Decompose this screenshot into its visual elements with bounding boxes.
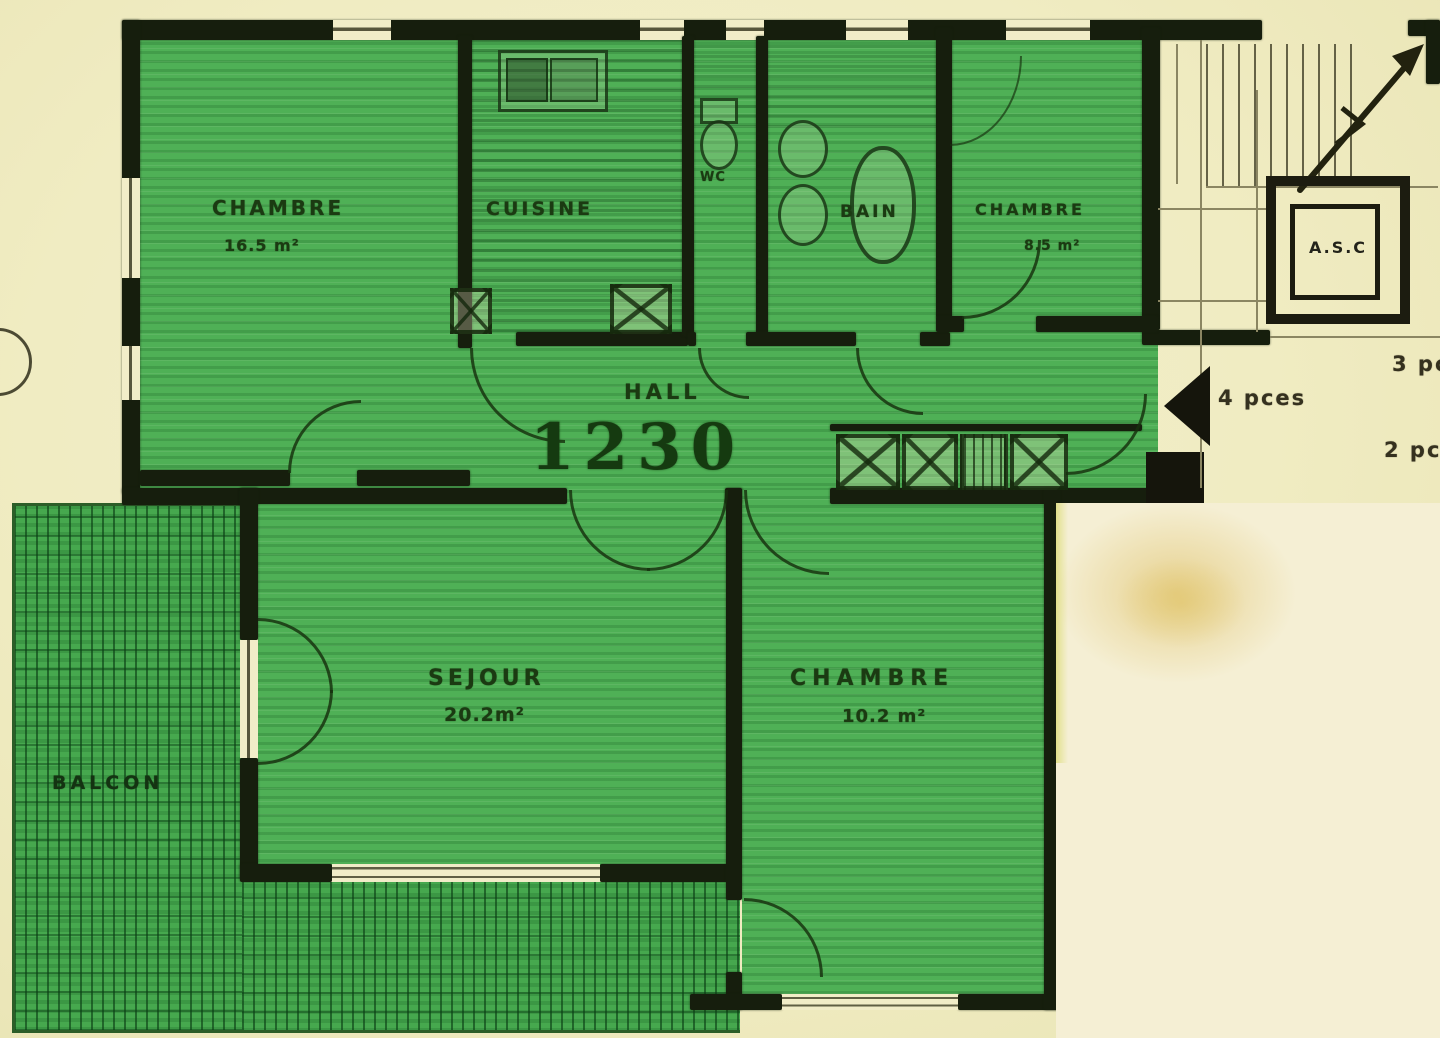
wall-wc-left: [682, 36, 694, 336]
hall-dimension: 1230: [530, 410, 744, 485]
closet-shelves: [960, 434, 1008, 490]
patch-edge: [1056, 503, 1068, 763]
room-area-chambre-b: 10.2 m²: [842, 706, 926, 727]
kitchen-stove: [550, 58, 598, 102]
room-area-sejour: 20.2m²: [444, 704, 525, 726]
annotation-4pces: 4 pces: [1218, 386, 1306, 410]
wall-chambretl-bottom-b: [357, 470, 470, 486]
balcony-door-sill: [240, 640, 258, 758]
closet-xbox: [1010, 434, 1068, 490]
room-label-wc: WC: [700, 170, 726, 185]
wall-wc-bain: [756, 36, 768, 336]
wall-chambretl-bottom-a: [140, 470, 290, 486]
elevator-label: A.S.C: [1276, 238, 1400, 257]
elevator-shaft: A.S.C: [1266, 176, 1410, 324]
wall-corner-bottom-left: [122, 488, 258, 505]
lift-link-line: [1158, 300, 1266, 302]
kitchen-sink: [506, 58, 548, 102]
wall-wcbain-south-a: [688, 332, 696, 346]
entry-direction-arrow: [1164, 366, 1210, 446]
paper-stain: [1116, 558, 1246, 648]
corridor-line: [1256, 90, 1258, 332]
sejour-window: [332, 864, 600, 882]
wall-hall-south-a: [240, 488, 567, 504]
window: [122, 178, 140, 278]
wall-sejour-bottom-a: [240, 864, 332, 882]
room-label-chambre-b: CHAMBRE: [790, 666, 954, 691]
annotation-3pces: 3 pces: [1392, 352, 1440, 376]
wall-chambretr-south-b: [1036, 316, 1158, 332]
room-label-chambre-tr: CHAMBRE: [975, 200, 1085, 219]
wall-right-top: [1142, 28, 1160, 330]
window: [122, 346, 140, 400]
window: [640, 20, 684, 40]
balcony-left: [14, 505, 244, 1031]
duct-shaft: [450, 288, 492, 334]
landing-line: [1270, 336, 1440, 338]
lift-link-line: [1158, 208, 1266, 210]
window: [846, 20, 908, 40]
room-area-chambre-tr: 8.5 m²: [1024, 238, 1080, 254]
room-area-chambre-tl: 16.5 m²: [224, 236, 300, 255]
paper-patch: [1056, 503, 1440, 1038]
closet-xbox: [902, 434, 958, 490]
wall-chambreb-bottom-a: [690, 994, 782, 1010]
wall-wcbain-south-c: [920, 332, 950, 346]
room-label-balcon: BALCON: [52, 772, 163, 794]
bidet: [778, 184, 828, 246]
closet-xbox: [836, 434, 900, 490]
floor-plan: A.S.C CHAMBRE 16.5 m² CUISINE WC BAIN CH…: [0, 0, 1440, 1038]
wall-right-stub: [1142, 330, 1270, 345]
chambre-window: [782, 994, 958, 1010]
wall-sejour-left-a: [240, 488, 258, 640]
wall-sejour-chambre: [726, 488, 742, 900]
toilet-bowl: [700, 120, 738, 170]
wall-sejour-bottom-b: [600, 864, 740, 882]
room-label-hall: HALL: [624, 380, 701, 404]
wall-cuisine-south: [516, 332, 688, 346]
wall-chambretr-south-a: [936, 316, 964, 332]
room-label-cuisine: CUISINE: [486, 198, 593, 220]
wall-sejour-left-b: [240, 758, 258, 880]
room-label-sejour: SEJOUR: [428, 666, 545, 691]
balcony-bottom-strip: [242, 882, 740, 1032]
wall-hall-south-c: [830, 488, 1158, 504]
room-label-bain: BAIN: [840, 202, 899, 222]
balcony-outline: [12, 1030, 740, 1033]
window: [333, 20, 391, 40]
bain-sink: [778, 120, 828, 178]
annotation-2pces: 2 pces: [1384, 438, 1440, 462]
room-label-chambre-tl: CHAMBRE: [212, 196, 344, 220]
window: [1006, 20, 1090, 40]
entry-pier: [1146, 452, 1204, 506]
corridor-line: [1176, 44, 1178, 184]
duct-shaft: [610, 284, 672, 334]
balcony-outline: [12, 503, 15, 1033]
wall-wcbain-south-b: [746, 332, 856, 346]
margin-circle-mark: [0, 328, 32, 396]
